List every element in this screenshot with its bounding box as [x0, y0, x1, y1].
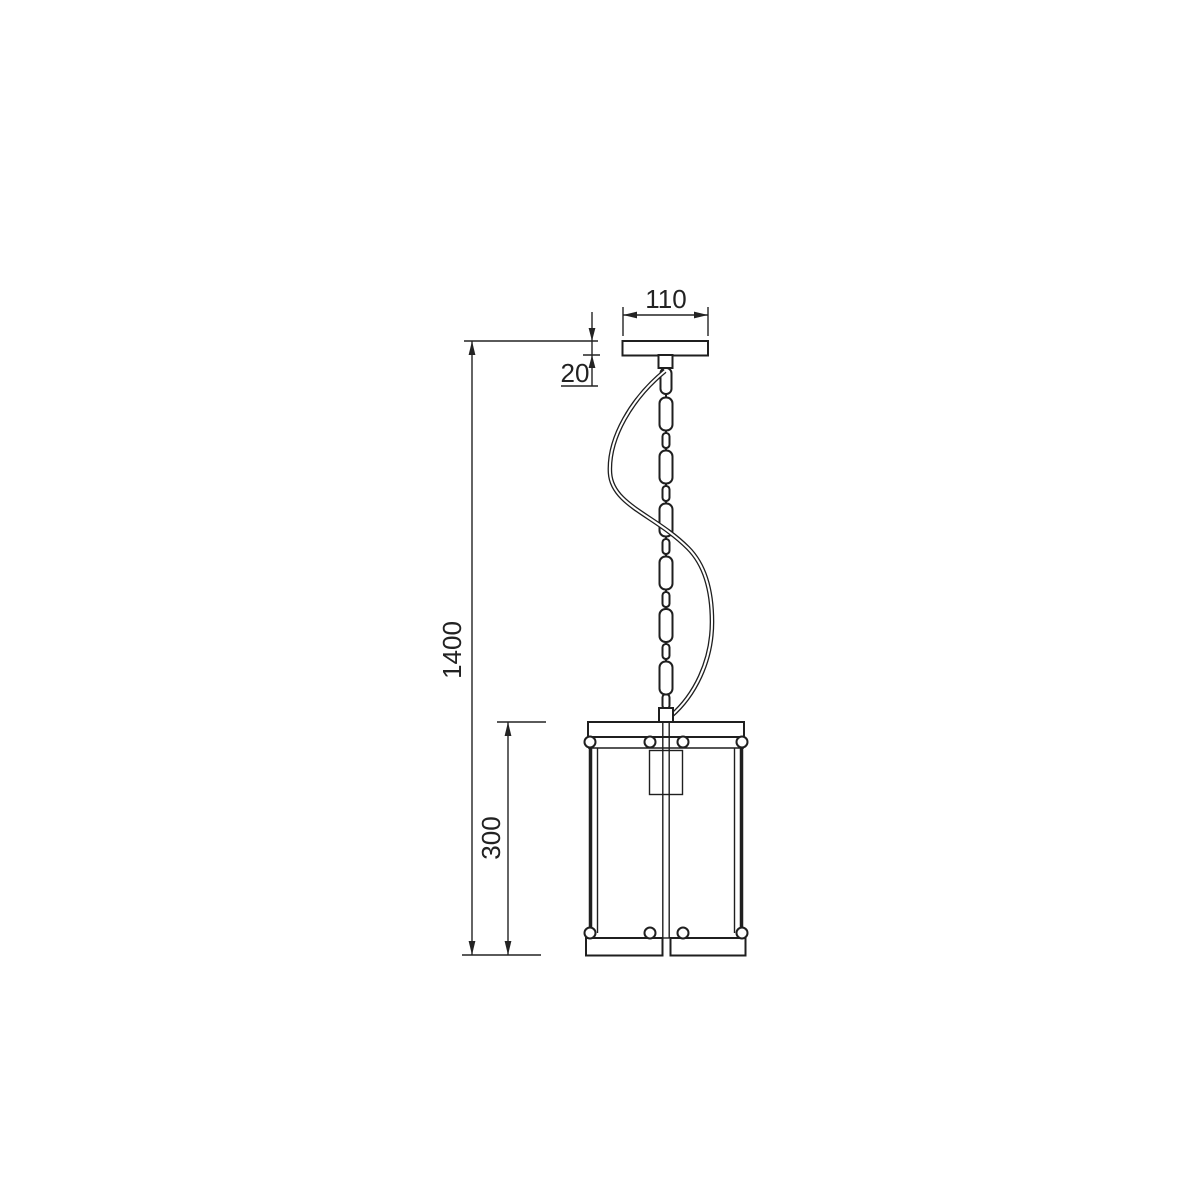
chain-link [663, 644, 670, 659]
arrowhead-down [589, 328, 596, 341]
shade-bottom-rim-right [671, 938, 746, 956]
arrowhead-down [469, 941, 476, 955]
arrowhead-down [505, 941, 512, 955]
bulb-socket [650, 751, 683, 795]
chain-link [663, 539, 670, 554]
chain-link [660, 451, 673, 484]
rivet [737, 928, 748, 939]
chain-link [663, 486, 670, 501]
dim-canopy-width-label: 110 [645, 284, 686, 314]
arrowhead-up [469, 341, 476, 355]
rivet [585, 737, 596, 748]
rivet [678, 737, 689, 748]
suspension-chain [660, 368, 673, 714]
shade-connector [659, 708, 673, 722]
dim-overall-height-label: 1400 [437, 621, 467, 679]
lantern-shade [585, 708, 748, 956]
shade-bottom-rim-left [586, 938, 663, 956]
drawing-canvas: 110 20 1400 300 [0, 0, 1200, 1200]
pendant-lamp-dimension-drawing: 110 20 1400 300 [0, 0, 1200, 1200]
dim-canopy-height-label: 20 [561, 358, 590, 388]
chain-link [663, 592, 670, 607]
rivet [678, 928, 689, 939]
arrowhead-left [623, 312, 637, 319]
rivet [645, 737, 656, 748]
arrowhead-up [505, 722, 512, 736]
dimension-overall-height: 1400 [437, 341, 598, 955]
chain-link [663, 433, 670, 448]
rivet [737, 737, 748, 748]
chain-link [660, 557, 673, 590]
dim-shade-height-label: 300 [476, 816, 506, 859]
ceiling-canopy [623, 341, 709, 368]
canopy-connector [659, 355, 673, 368]
arrowhead-right [694, 312, 708, 319]
dimension-shade-height: 300 [476, 722, 546, 955]
chain-link [663, 694, 670, 709]
shade-top-rim [588, 722, 744, 737]
rivet [645, 928, 656, 939]
chain-link [660, 662, 673, 695]
dimension-canopy-height: 20 [561, 312, 600, 388]
dimension-canopy-width: 110 [623, 284, 708, 336]
canopy-plate [623, 341, 709, 356]
chain-link [660, 609, 673, 642]
rivet [585, 928, 596, 939]
chain-link [660, 398, 673, 431]
arrowhead-up [589, 355, 596, 368]
